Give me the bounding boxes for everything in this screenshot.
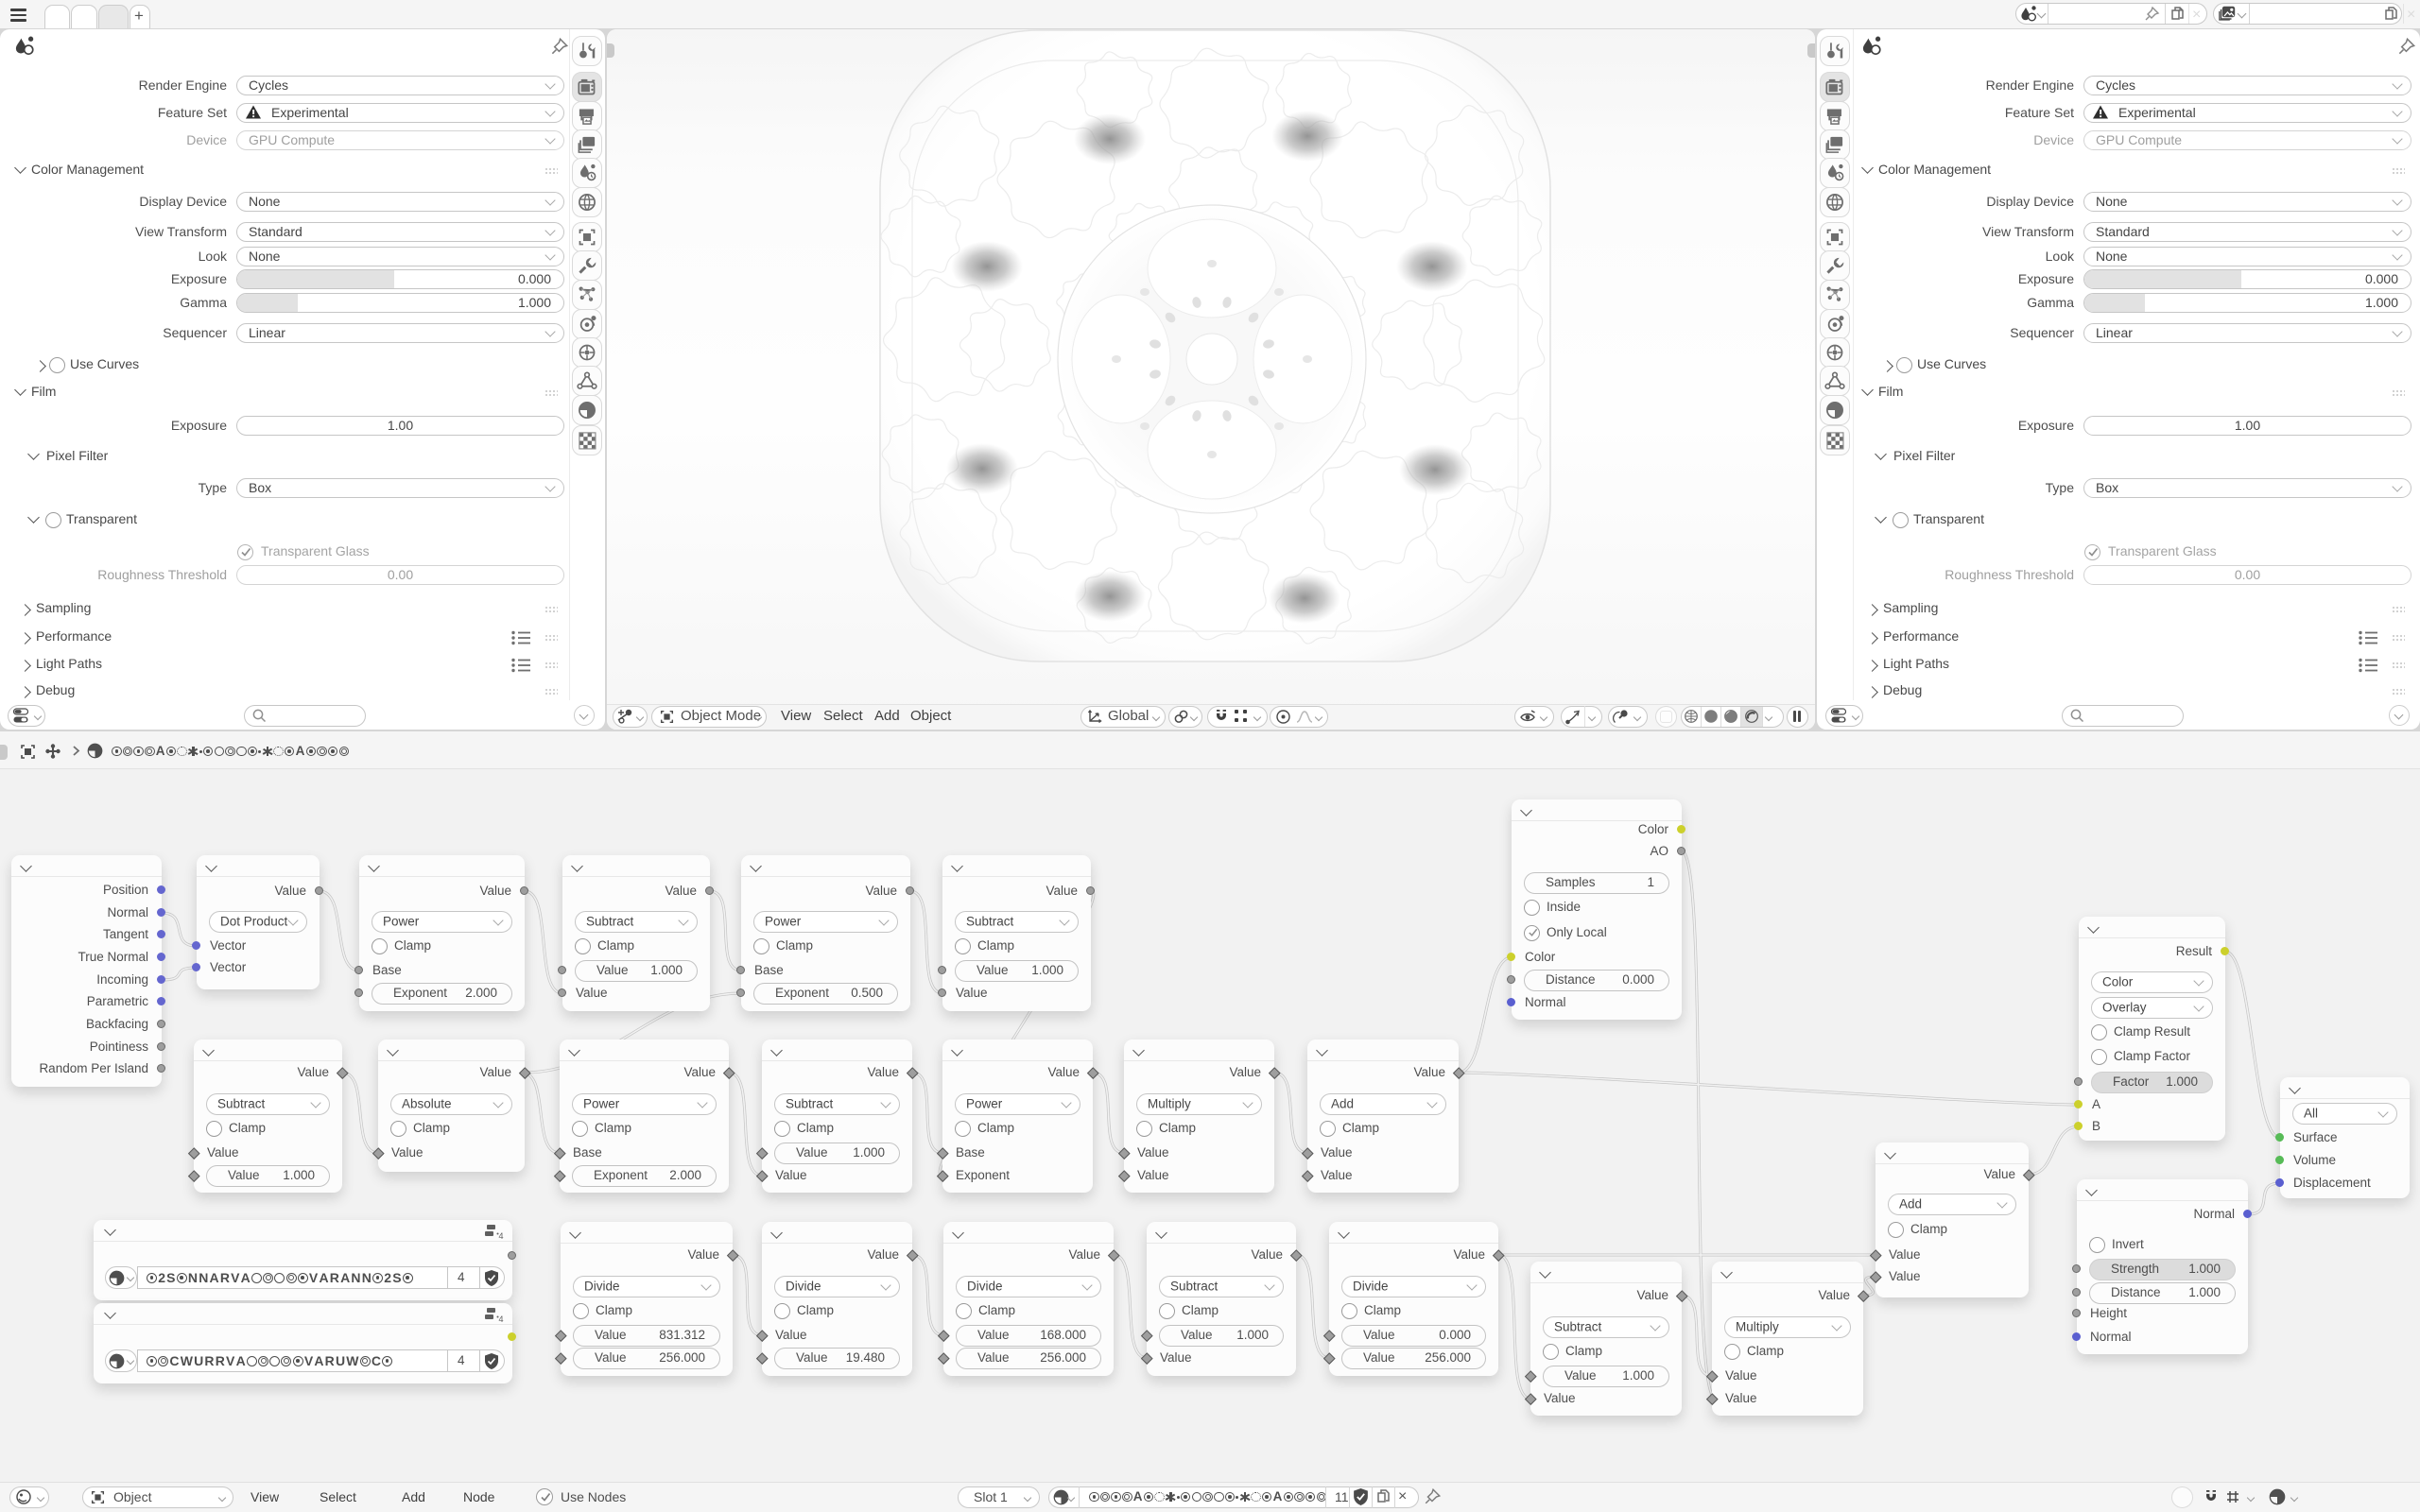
svg-text:4: 4 — [499, 1314, 504, 1324]
svg-text:4: 4 — [499, 1231, 504, 1241]
